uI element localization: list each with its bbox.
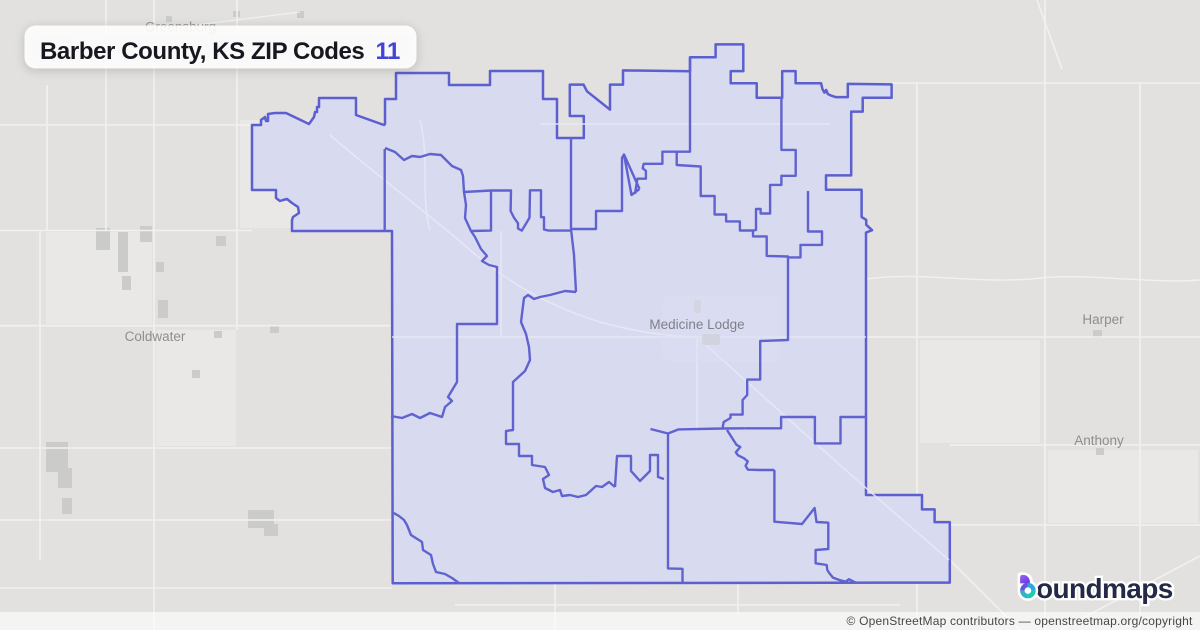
svg-text:Barber County, KS ZIP Codes: Barber County, KS ZIP Codes [40, 38, 364, 65]
svg-text:Medicine Lodge: Medicine Lodge [649, 317, 744, 332]
svg-text:Coldwater: Coldwater [125, 329, 186, 344]
svg-text:oundmaps: oundmaps [1036, 573, 1173, 604]
svg-text:Harper: Harper [1082, 312, 1124, 327]
svg-text:© OpenStreetMap contributors —: © OpenStreetMap contributors — openstree… [847, 614, 1193, 628]
svg-text:Anthony: Anthony [1074, 433, 1124, 448]
svg-text:11: 11 [376, 38, 401, 65]
